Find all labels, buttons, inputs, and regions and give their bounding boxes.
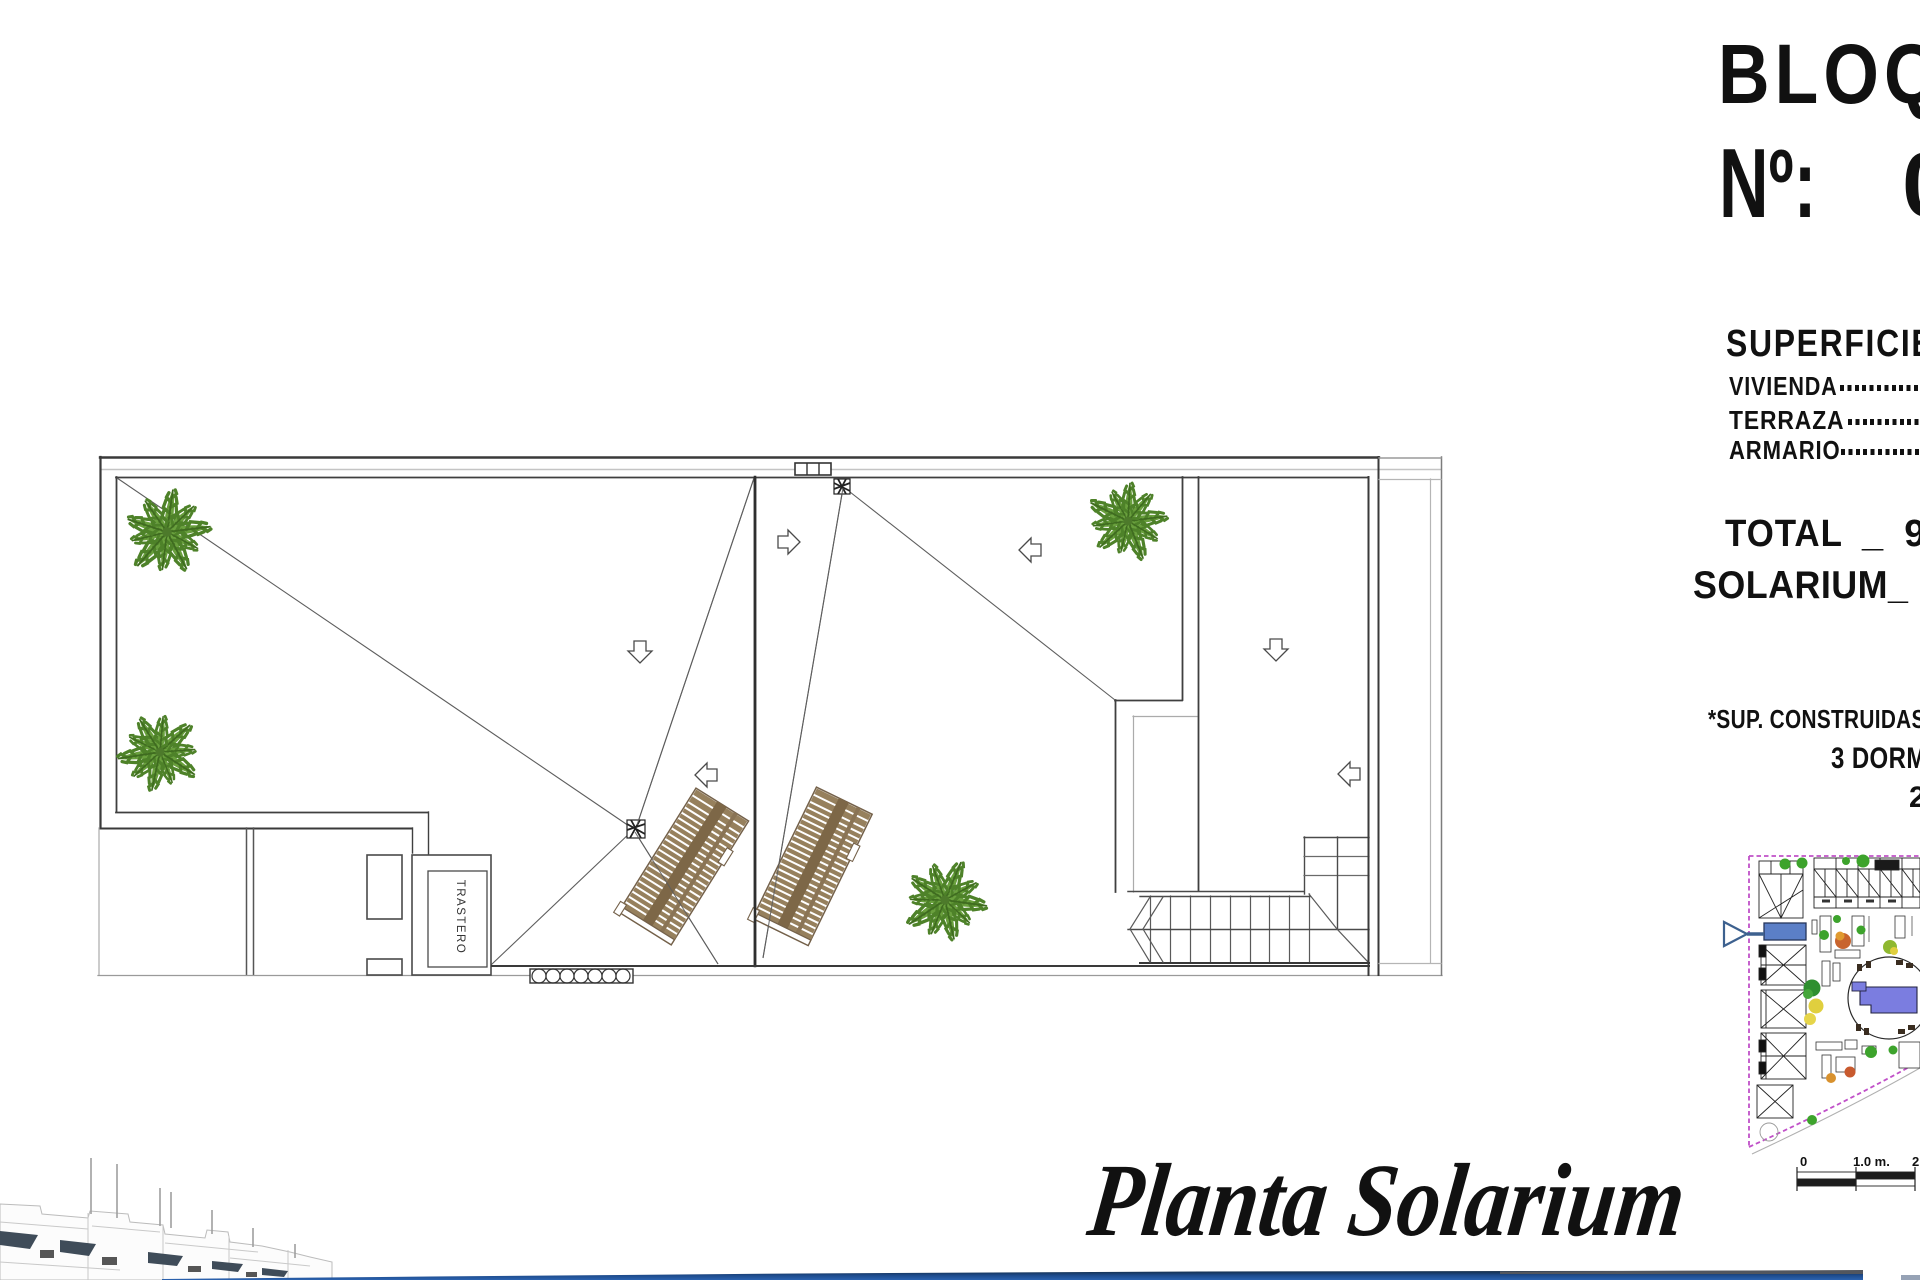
svg-text:1.0 m.: 1.0 m. bbox=[1853, 1154, 1890, 1169]
svg-text:0: 0 bbox=[1800, 1154, 1807, 1169]
svg-text:2: 2 bbox=[1912, 1154, 1919, 1169]
svg-text:TRASTERO: TRASTERO bbox=[454, 880, 466, 955]
